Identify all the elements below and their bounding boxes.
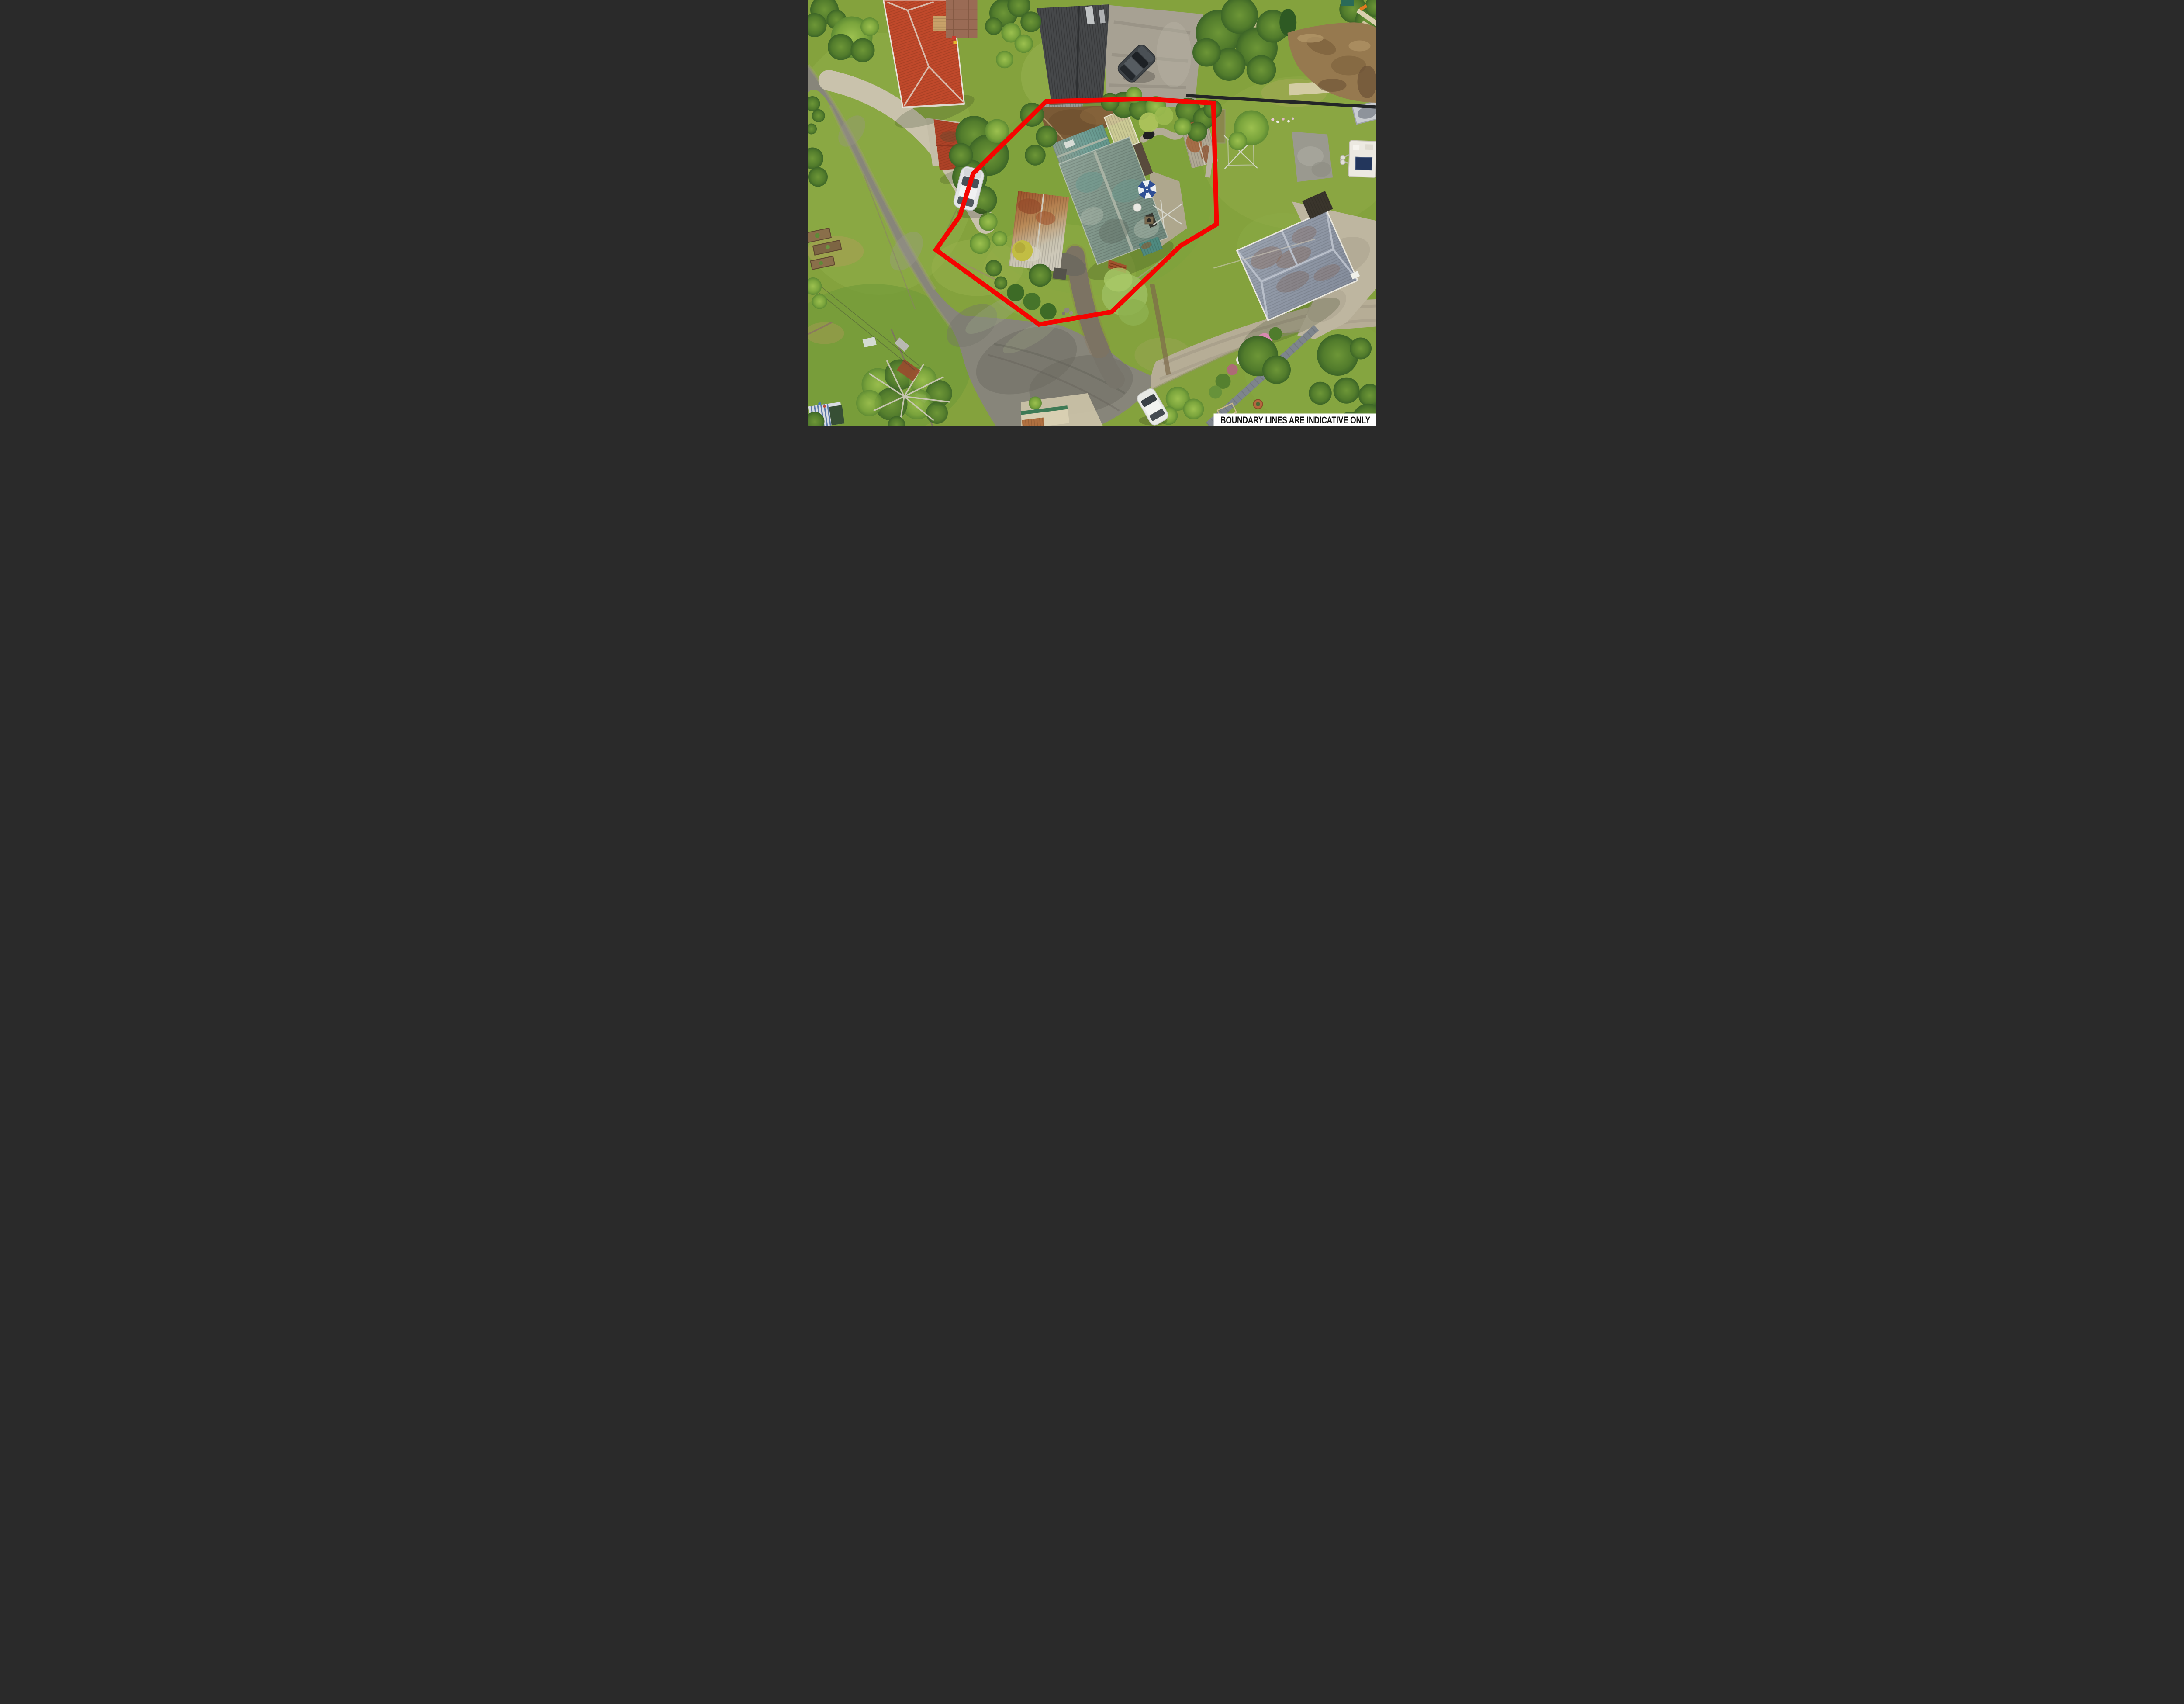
aerial-photo: BOUNDARY LINES ARE INDICATIVE ONLY [808,0,1376,426]
disclaimer-text: BOUNDARY LINES ARE INDICATIVE ONLY [1220,415,1370,426]
solar-panel [1355,157,1372,170]
red-crate [952,36,956,40]
yellow-bin [954,41,957,44]
satellite-dish [1133,204,1141,211]
disclaimer-banner: BOUNDARY LINES ARE INDICATIVE ONLY [1214,414,1376,426]
aerial-scene: BOUNDARY LINES ARE INDICATIVE ONLY [808,0,1376,426]
green-structure [1341,0,1354,6]
brick-patio [946,0,978,38]
